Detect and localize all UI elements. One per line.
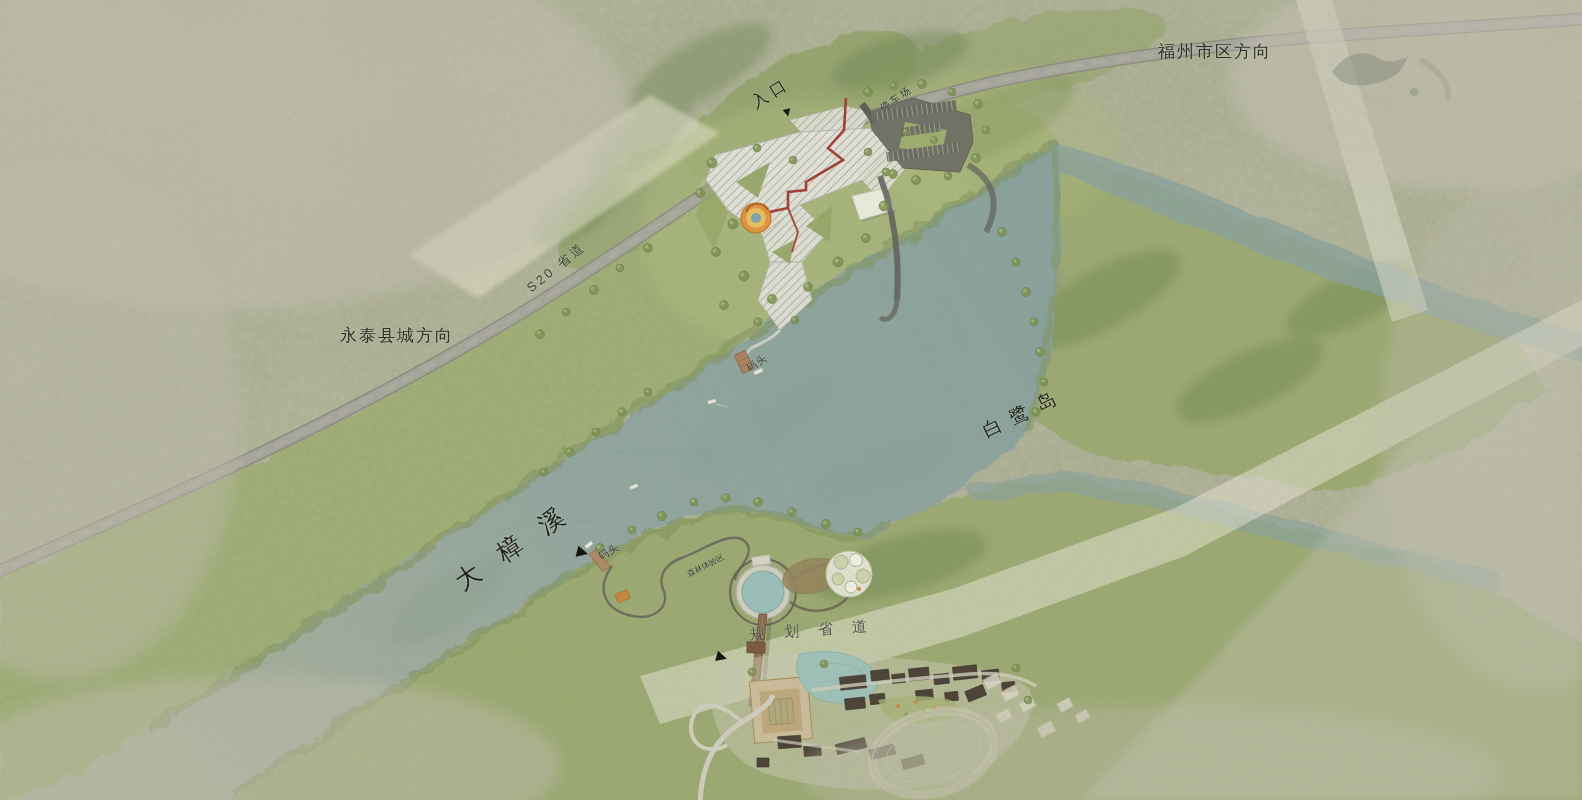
label-yongtai-direction: 永泰县城方向: [340, 327, 454, 344]
site-plan-map: [0, 0, 1582, 800]
site-plan: 福州市区方向 永泰县城方向 入口 ▼ 停车场 S20 省道 码头 白鹭岛 大樟溪…: [0, 0, 1582, 800]
entrance-marker-icon: ▼: [779, 104, 794, 119]
label-fuzhou-direction: 福州市区方向: [1158, 43, 1272, 60]
paper-grain: [0, 0, 1582, 800]
